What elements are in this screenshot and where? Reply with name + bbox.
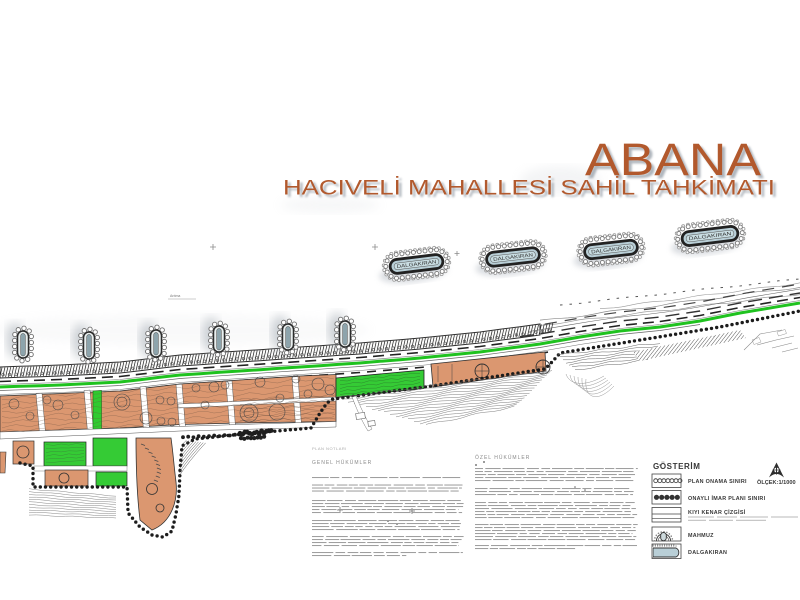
svg-text:Arıtma: Arıtma xyxy=(170,294,180,298)
svg-text:ÖZEL HÜKÜMLER: ÖZEL HÜKÜMLER xyxy=(475,454,530,461)
svg-text:HACIVELİ MAHALLESİ SAHİL TAHKİ: HACIVELİ MAHALLESİ SAHİL TAHKİMATI xyxy=(283,177,775,200)
svg-text:ÖLÇEK:1/1000: ÖLÇEK:1/1000 xyxy=(757,479,796,486)
svg-text:KIYI KENAR ÇİZGİSİ: KIYI KENAR ÇİZGİSİ xyxy=(688,509,746,516)
svg-text:GENEL HÜKÜMLER: GENEL HÜKÜMLER xyxy=(312,459,372,466)
svg-text:PLAN ONAMA SINIRI: PLAN ONAMA SINIRI xyxy=(688,479,747,485)
svg-text:ONAYLI İMAR PLANI SINIRI: ONAYLI İMAR PLANI SINIRI xyxy=(688,495,766,502)
svg-text:MAHMUZ: MAHMUZ xyxy=(688,533,714,539)
svg-text:DALGAKIRAN: DALGAKIRAN xyxy=(688,550,727,556)
svg-text:GÖSTERİM: GÖSTERİM xyxy=(653,462,700,471)
svg-text:PLAN NOTLARI: PLAN NOTLARI xyxy=(312,446,347,451)
